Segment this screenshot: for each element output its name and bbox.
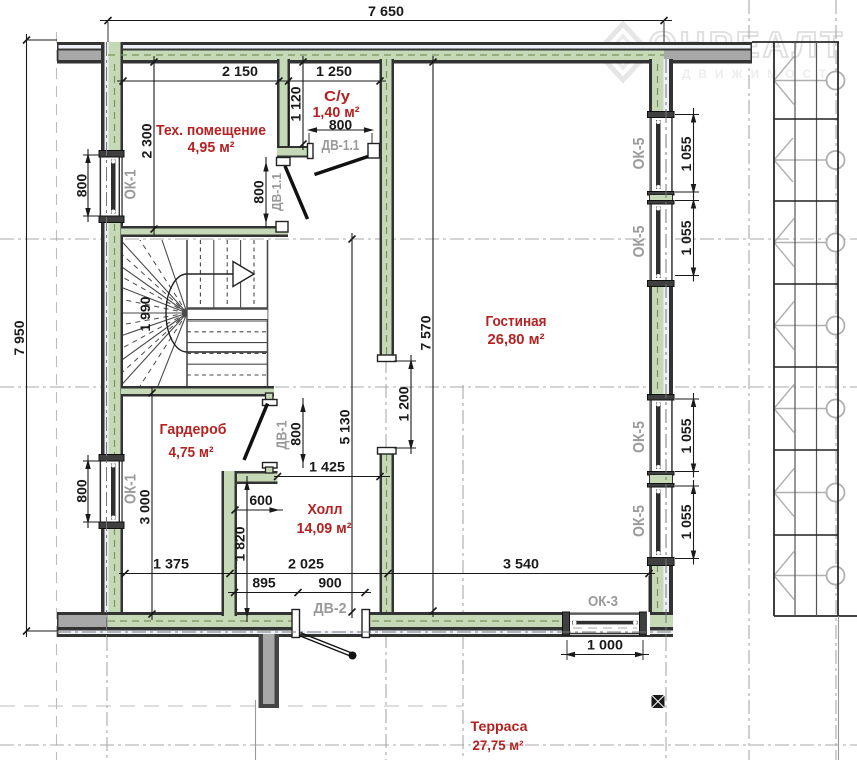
svg-text:Холл: Холл xyxy=(308,501,343,518)
svg-text:Гостиная: Гостиная xyxy=(486,313,547,330)
svg-text:1 375: 1 375 xyxy=(153,556,189,572)
svg-text:1 250: 1 250 xyxy=(316,63,352,79)
svg-text:ОК-1: ОК-1 xyxy=(123,169,140,199)
svg-text:800: 800 xyxy=(251,180,267,204)
svg-text:5 130: 5 130 xyxy=(337,409,353,444)
svg-text:Терраса: Терраса xyxy=(471,718,528,734)
svg-text:1 055: 1 055 xyxy=(678,136,694,171)
svg-text:7 950: 7 950 xyxy=(11,320,27,355)
svg-text:600: 600 xyxy=(249,492,273,508)
svg-text:ОК-5: ОК-5 xyxy=(631,225,648,257)
svg-text:800: 800 xyxy=(74,174,90,198)
svg-text:Тех. помещение: Тех. помещение xyxy=(156,122,266,139)
svg-text:ДВ-1.1: ДВ-1.1 xyxy=(269,173,284,211)
svg-text:4,75 м²: 4,75 м² xyxy=(169,444,214,461)
svg-text:ДВ-1: ДВ-1 xyxy=(274,421,291,450)
svg-text:ДВ-2: ДВ-2 xyxy=(314,600,347,617)
svg-text:ОК-5: ОК-5 xyxy=(631,421,648,453)
svg-text:1 055: 1 055 xyxy=(678,418,694,453)
svg-text:800: 800 xyxy=(74,479,90,503)
svg-text:НЕДВИЖИМОСТЬ: НЕДВИЖИМОСТЬ xyxy=(649,67,851,81)
svg-text:1 200: 1 200 xyxy=(396,386,412,421)
svg-text:895: 895 xyxy=(252,575,276,591)
svg-text:2 300: 2 300 xyxy=(139,123,155,158)
svg-text:2 150: 2 150 xyxy=(222,63,258,79)
svg-text:1 120: 1 120 xyxy=(288,86,304,121)
svg-text:1 055: 1 055 xyxy=(678,504,694,539)
svg-text:2 025: 2 025 xyxy=(288,556,324,572)
svg-text:900: 900 xyxy=(318,575,342,591)
svg-text:1 000: 1 000 xyxy=(587,637,623,653)
svg-text:4,95 м²: 4,95 м² xyxy=(188,139,235,156)
svg-text:ОК-5: ОК-5 xyxy=(631,137,648,169)
svg-text:ОК-3: ОК-3 xyxy=(588,593,618,610)
svg-text:1 425: 1 425 xyxy=(309,459,345,475)
svg-text:27,75 м²: 27,75 м² xyxy=(473,737,524,753)
svg-text:1,40 м²: 1,40 м² xyxy=(313,104,360,121)
svg-text:1 055: 1 055 xyxy=(678,220,694,255)
svg-text:26,80 м²: 26,80 м² xyxy=(488,331,545,348)
svg-text:3 540: 3 540 xyxy=(503,556,539,572)
svg-text:ОК-5: ОК-5 xyxy=(631,505,648,537)
svg-text:7 650: 7 650 xyxy=(368,3,404,19)
svg-text:ДВ-1.1: ДВ-1.1 xyxy=(322,137,360,154)
svg-text:С/у: С/у xyxy=(324,88,351,105)
svg-text:7 570: 7 570 xyxy=(418,315,434,350)
svg-text:1 990: 1 990 xyxy=(137,296,153,331)
svg-text:ОК-1: ОК-1 xyxy=(123,474,140,504)
svg-text:1 820: 1 820 xyxy=(232,526,248,561)
svg-text:14,09 м²: 14,09 м² xyxy=(297,520,352,537)
svg-text:Гардероб: Гардероб xyxy=(160,421,227,438)
